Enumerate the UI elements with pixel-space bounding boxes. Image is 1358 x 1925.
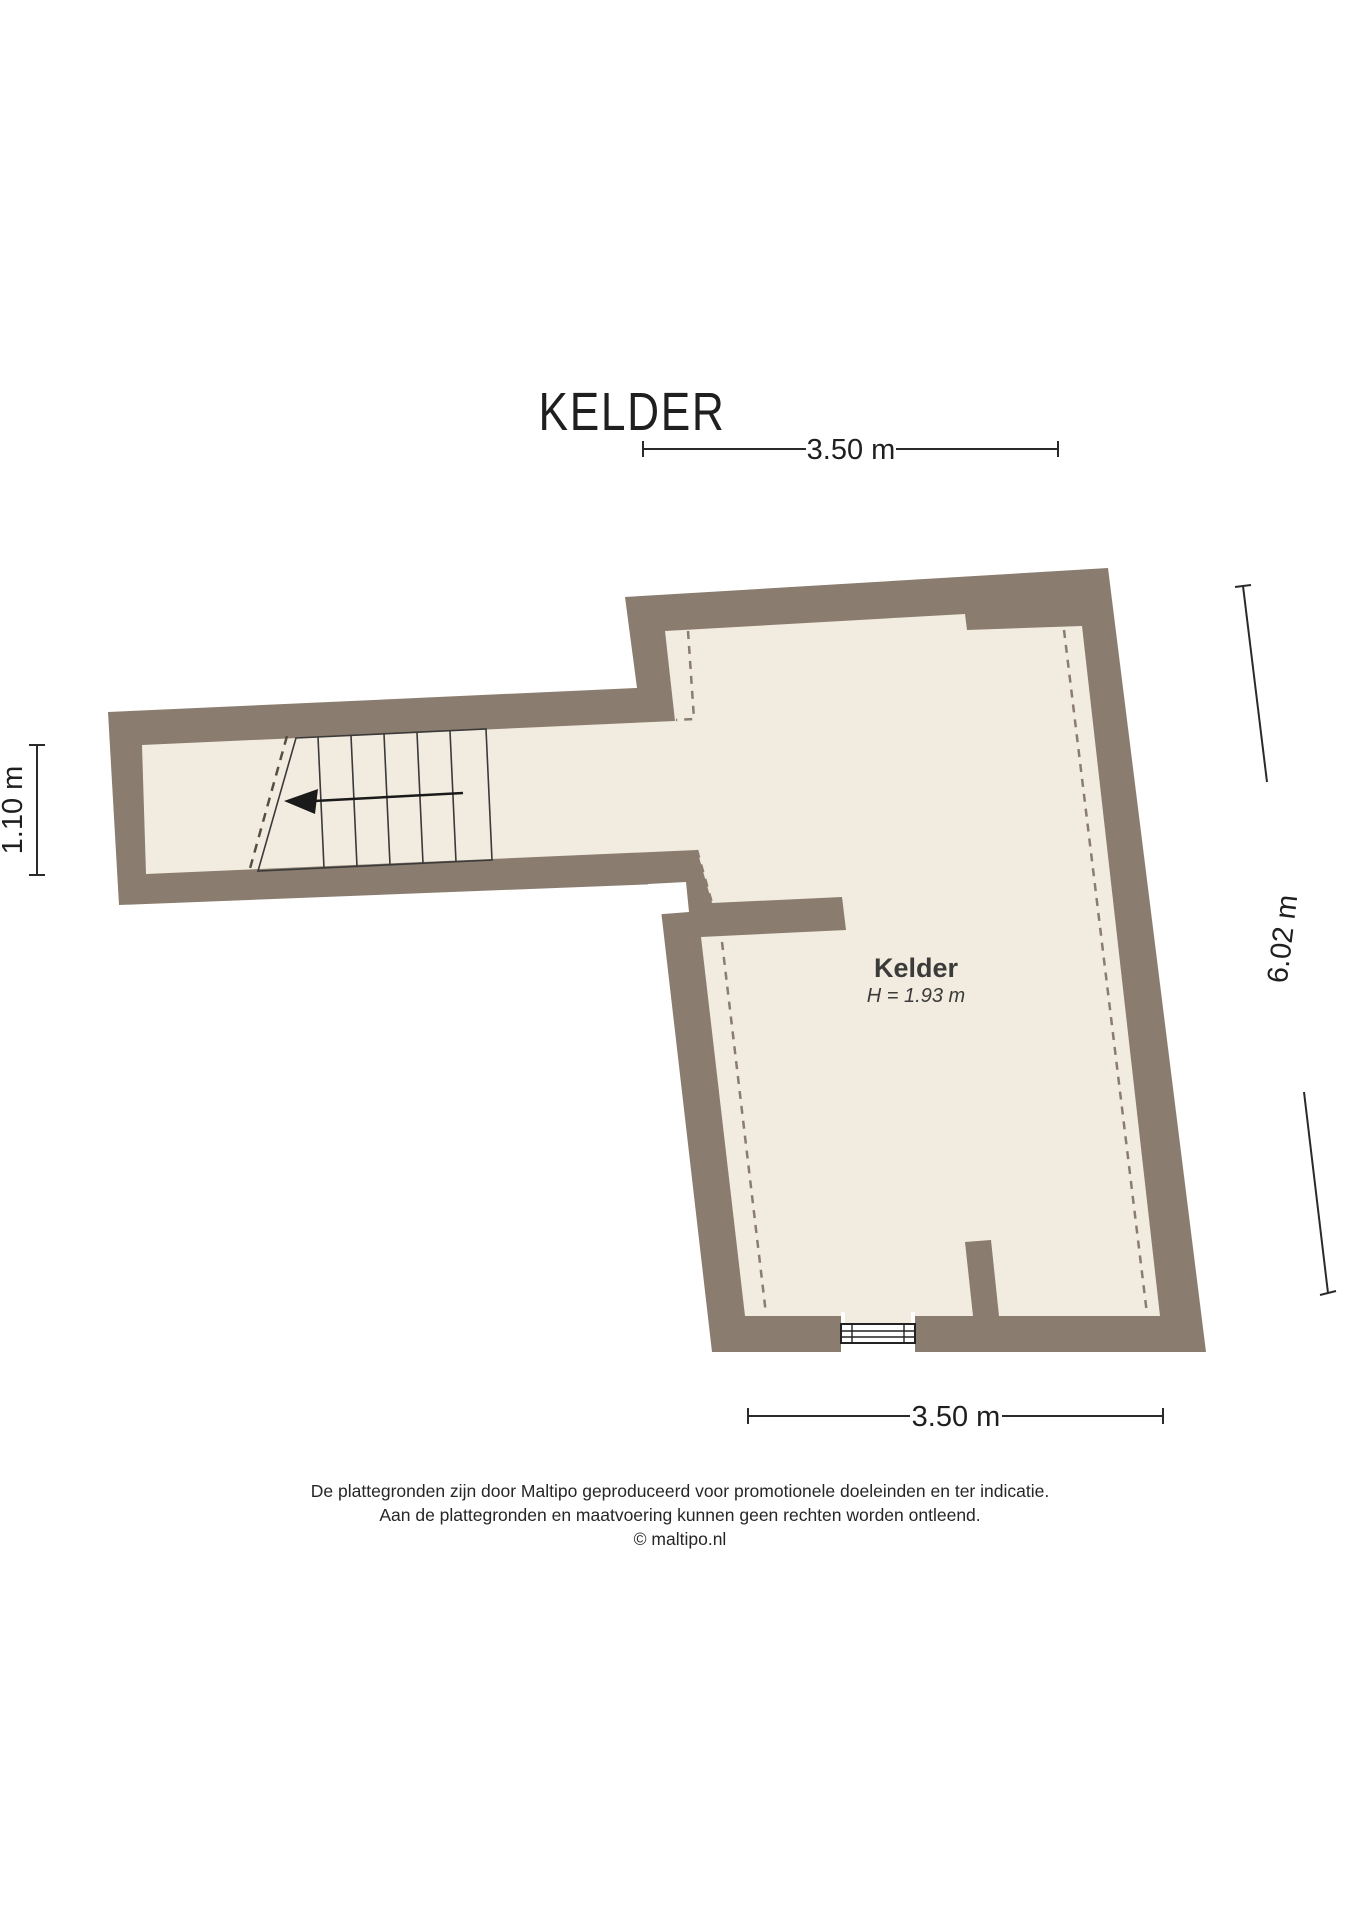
room-height-label: H = 1.93 m <box>867 985 965 1007</box>
wall-notch <box>648 882 689 915</box>
floorplan-canvas: KELDER Kelder H = 1. <box>0 0 1358 1920</box>
footer-line-3: © maltipo.nl <box>634 1529 727 1549</box>
dimension-right: 6.02 m <box>1235 585 1336 1295</box>
dimension-left-label: 1.10 m <box>0 766 29 855</box>
dimension-top-label: 3.50 m <box>807 434 896 466</box>
dimension-left: 1.10 m <box>0 745 45 875</box>
floorplan-page: KELDER Kelder H = 1. <box>0 0 1358 1920</box>
room-label: Kelder <box>874 953 959 983</box>
footer-disclaimer: De plattegronden zijn door Maltipo gepro… <box>311 1481 1049 1549</box>
dimension-right-label: 6.02 m <box>1262 893 1304 985</box>
footer-line-2: Aan de plattegronden en maatvoering kunn… <box>379 1505 980 1525</box>
dimension-bottom-label: 3.50 m <box>912 1401 1001 1433</box>
footer-line-1: De plattegronden zijn door Maltipo gepro… <box>311 1481 1049 1501</box>
page-title: KELDER <box>539 382 726 442</box>
dimension-bottom: 3.50 m <box>748 1401 1163 1433</box>
window-symbol <box>841 1312 915 1352</box>
